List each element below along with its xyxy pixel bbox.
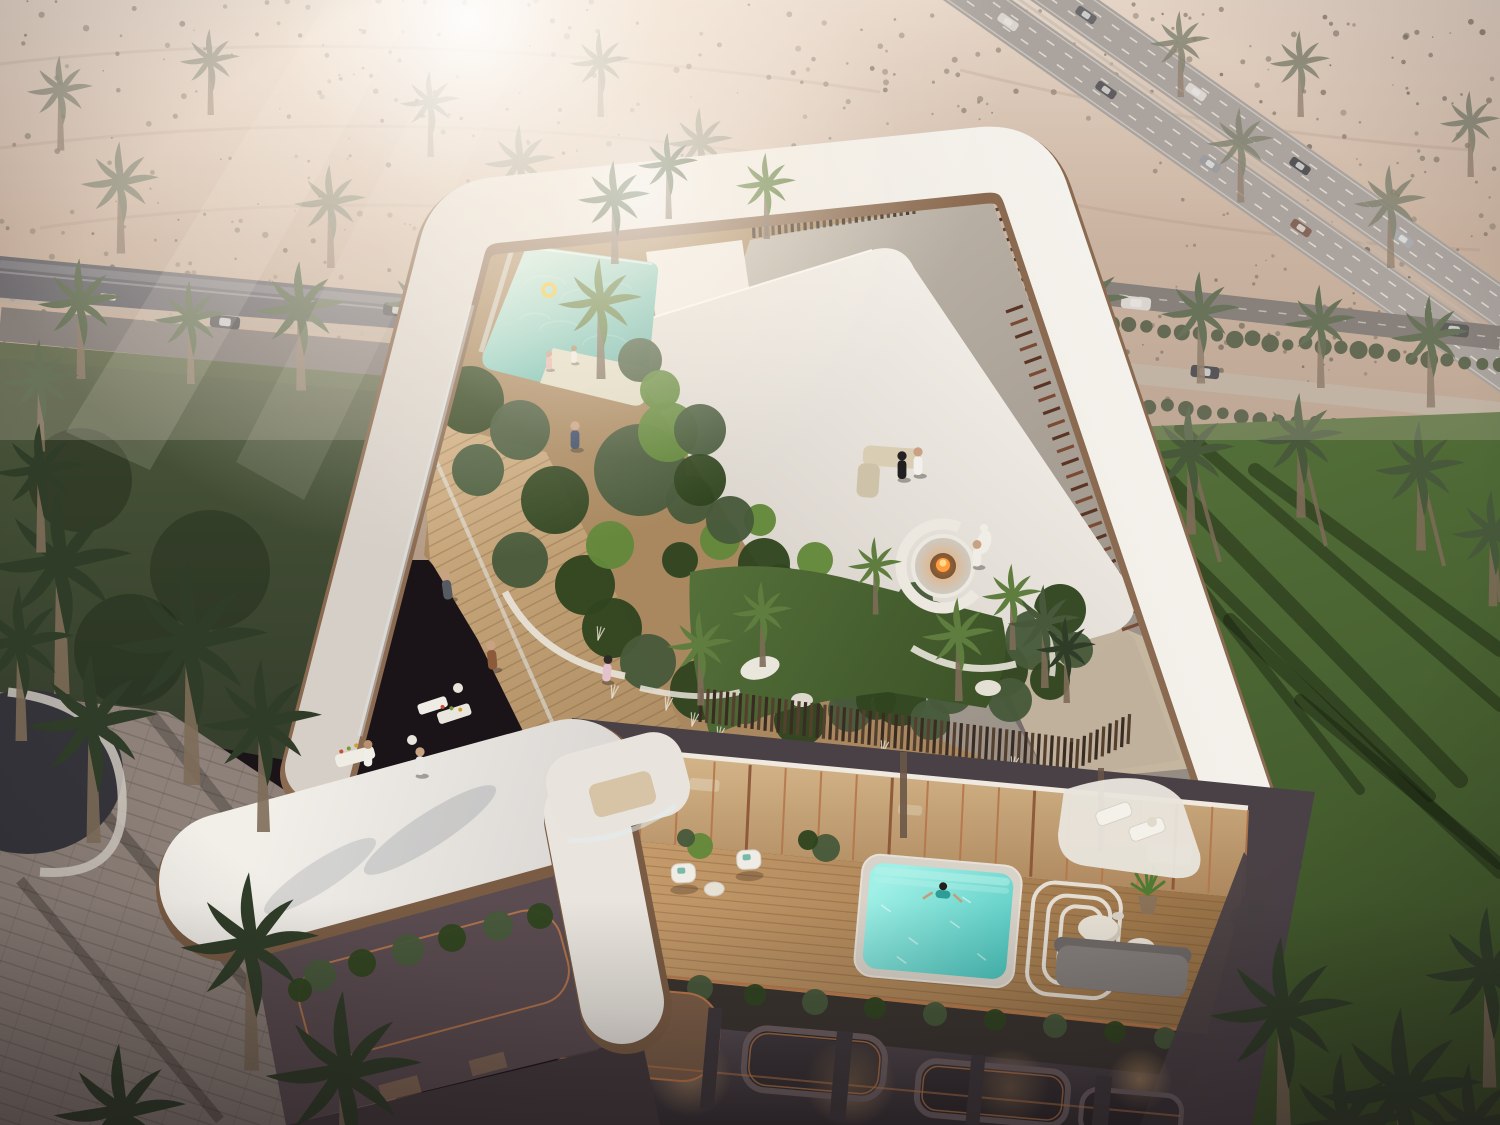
aerial-architectural-rendering <box>0 0 1500 1125</box>
vignette <box>0 0 1500 1125</box>
rendering-stage <box>0 0 1500 1125</box>
